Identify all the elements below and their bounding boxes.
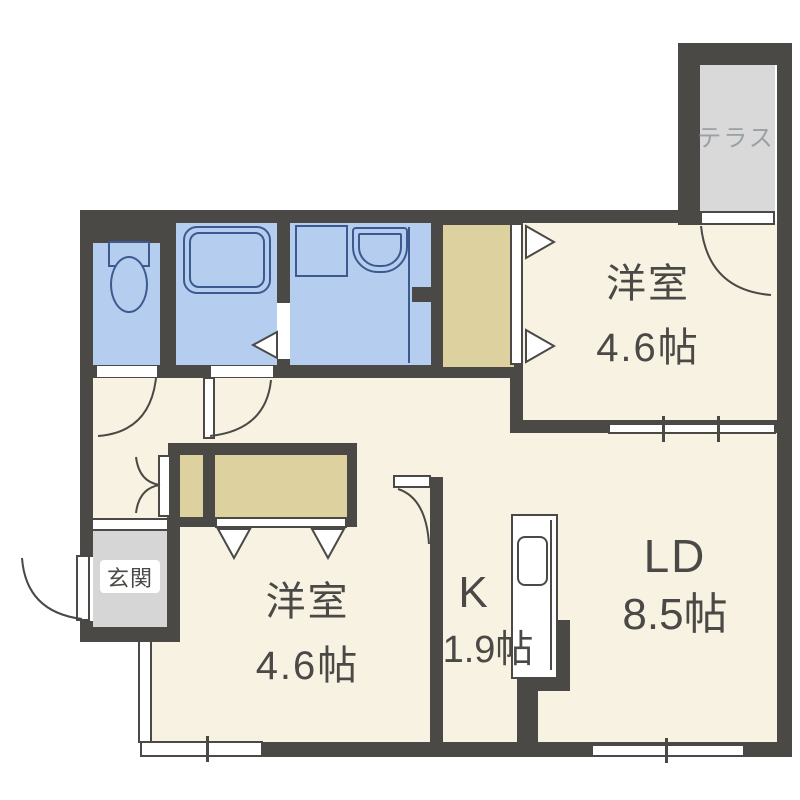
washroom-door-opening <box>211 366 273 377</box>
outside-notch <box>93 640 140 757</box>
entrance-door-panel <box>76 555 90 621</box>
washroom-divider-line <box>408 227 410 363</box>
window-tick-1 <box>206 736 209 762</box>
sliding-door-bedroom-ld <box>608 423 776 434</box>
window-south-ld <box>591 744 745 757</box>
bedroom-top-name: 洋室 <box>560 252 736 316</box>
ld-label: LD <box>585 530 765 582</box>
bedroom2-door-panel <box>393 475 431 488</box>
toilet-bowl <box>110 256 148 313</box>
washbasin-inner <box>358 233 402 267</box>
terrace-door <box>700 211 775 225</box>
entrance-step <box>93 518 167 531</box>
wall-k-ld-stub-v <box>557 620 570 691</box>
window-west <box>138 640 152 743</box>
bathtub <box>183 226 271 294</box>
bedroom-top-size: 4.6帖 <box>560 316 736 380</box>
wall-terrace-top <box>678 43 792 65</box>
wall-bath-wash-upper <box>277 223 290 303</box>
floor-plan: テラス 洋室 4.6帖 洋室 4.6帖 K 1.9帖 LD 8.5帖 玄関 <box>0 0 800 800</box>
sliding-tick-2 <box>717 416 720 442</box>
kitchen-sink <box>517 536 548 586</box>
entrance-label: 玄関 <box>107 561 153 593</box>
bathtub-inner <box>189 232 265 288</box>
window-south-bedroom <box>140 741 263 757</box>
wall-right <box>777 43 792 757</box>
wall-entrance-bottom <box>80 627 170 642</box>
bath-door-opening <box>277 303 290 359</box>
washing-machine <box>295 225 348 277</box>
sliding-tick-1 <box>662 416 665 442</box>
bedroom-top-label: 洋室 4.6帖 <box>560 252 736 380</box>
terrace-label: テラス <box>696 118 776 153</box>
closet-hall-right <box>215 455 347 517</box>
closet-bedroom-top <box>441 223 516 369</box>
wall-toilet-bath <box>160 223 176 368</box>
washbasin <box>352 227 408 273</box>
kitchen-label: K <box>440 568 506 618</box>
closet-hall-left <box>180 455 203 517</box>
toilet-door-opening <box>97 366 157 377</box>
bedroom-bottom-size: 4.6帖 <box>215 634 400 698</box>
ld-size: 8.5帖 <box>585 590 765 640</box>
window-tick-2 <box>665 738 668 763</box>
wall-left <box>80 210 93 557</box>
entrance-door-arc <box>22 558 82 619</box>
entrance-label-box: 玄関 <box>100 560 160 593</box>
closet-hall-south-door <box>215 517 347 528</box>
washroom-door-panel <box>203 377 215 439</box>
wall-entrance-right <box>167 517 180 642</box>
closet-top-door-strip <box>510 223 523 365</box>
washroom-shelf-band <box>412 287 431 302</box>
kitchen-size: 1.9帖 <box>418 628 558 672</box>
bedroom-bottom-name: 洋室 <box>215 570 400 634</box>
closet-hall-west-door <box>158 455 171 517</box>
bedroom-bottom-label: 洋室 4.6帖 <box>215 570 400 698</box>
